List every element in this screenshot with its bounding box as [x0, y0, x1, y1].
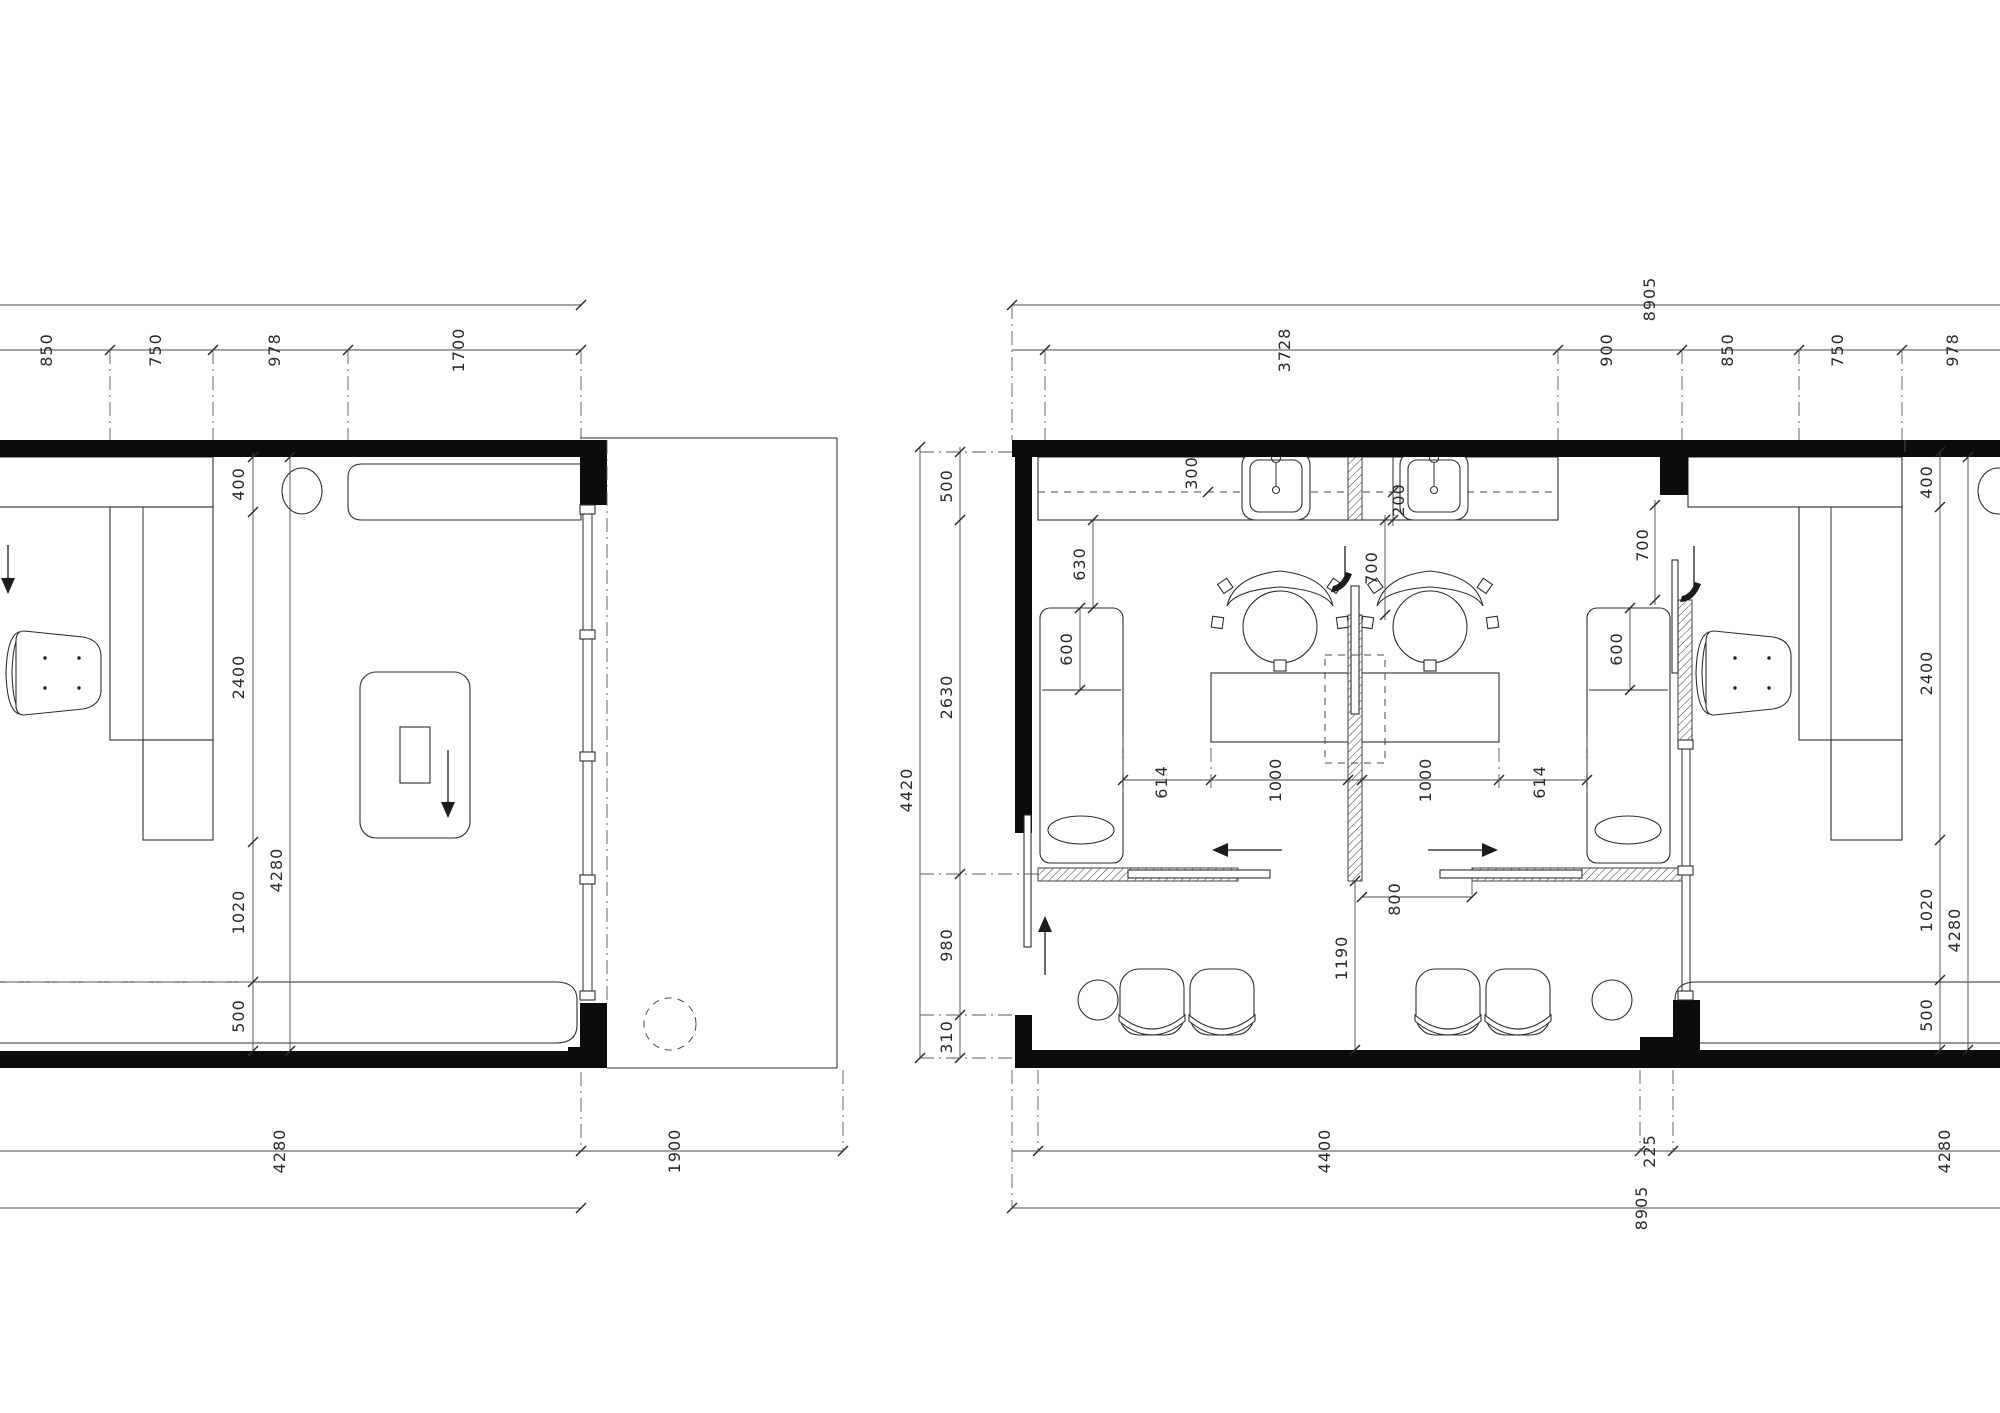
dimension-label: 1190	[1332, 936, 1351, 981]
dimension-label: 500	[937, 469, 956, 503]
sliding-door-right	[1440, 870, 1582, 878]
dimension-label: 4420	[897, 768, 916, 813]
dimension-label: 1900	[665, 1129, 684, 1174]
adjacent-space-outline	[580, 438, 837, 1068]
plan-left	[0, 438, 837, 1068]
dimension-label: 700	[1633, 528, 1652, 562]
dimension-label: 978	[265, 333, 284, 367]
screen-panel	[1351, 586, 1359, 714]
side-table-right	[1592, 980, 1632, 1020]
stool-right	[1978, 468, 2000, 514]
dimension-label: 4280	[267, 848, 286, 893]
dimension-label: 300	[1182, 456, 1201, 490]
wall-counter	[348, 464, 581, 520]
glazed-window-wall-right	[1678, 740, 1693, 1000]
dimension-label: 900	[1597, 333, 1616, 367]
dashed-column	[644, 998, 696, 1050]
sliding-door-left-arrow	[1212, 843, 1282, 857]
wall-bottom	[0, 1051, 580, 1068]
dimension-label: 400	[229, 467, 248, 501]
dimension-label: 310	[937, 1020, 956, 1054]
counter-pier	[1348, 457, 1362, 520]
sink-left	[1242, 452, 1310, 520]
dimension-label: 4280	[1935, 1129, 1954, 1174]
wall-top-left-section	[1012, 440, 1660, 457]
dimension-label: 225	[1640, 1134, 1659, 1168]
sliding-door-right-arrow	[1428, 843, 1498, 857]
dimension-label: 2400	[1917, 651, 1936, 696]
dimension-label: 4400	[1315, 1129, 1334, 1174]
sliding-door-left	[1128, 870, 1270, 878]
dimension-label: 630	[1070, 547, 1089, 581]
floorplan-canvas: 8507509781700400240010205004280428019008…	[0, 0, 2000, 1413]
dimension-label: 1020	[1917, 888, 1936, 933]
dimension-label: 750	[1828, 333, 1847, 367]
dimension-label: 850	[1718, 333, 1737, 367]
wall-stub-door	[1660, 440, 1688, 495]
bench	[0, 982, 577, 1043]
entry-door-leaf	[1024, 815, 1031, 947]
door-pocket	[1678, 600, 1692, 740]
wall-corner-bottom-right	[580, 1003, 607, 1068]
wall-bottom-right-section	[1700, 1050, 2000, 1068]
dimension-label: 614	[1530, 765, 1549, 799]
dimension-label: 700	[1362, 551, 1381, 585]
wall-top-right-section	[1688, 440, 2000, 457]
dimension-label: 614	[1152, 765, 1171, 799]
dimension-label: 2630	[937, 675, 956, 720]
wall-corner-top-right	[580, 440, 607, 505]
dimension-label: 1700	[449, 328, 468, 373]
dimension-label: 850	[37, 333, 56, 367]
room-door-arrow	[1680, 546, 1701, 602]
dimension-label: 400	[1917, 465, 1936, 499]
entry-arrow-left	[1, 545, 15, 594]
dimension-label: 500	[229, 999, 248, 1033]
room-door-leaf	[1672, 560, 1678, 673]
dimension-label: 200	[1389, 483, 1408, 517]
dimension-label: 600	[1607, 632, 1626, 666]
task-chair	[6, 631, 101, 715]
wall-corner-right-room	[1673, 1000, 1700, 1050]
dimension-label: 4280	[1945, 908, 1964, 953]
waiting-chair-2	[1189, 969, 1255, 1035]
sink-right	[1400, 452, 1468, 520]
stool	[282, 468, 322, 514]
glazed-window-wall	[580, 505, 595, 1000]
wardrobe-right	[1587, 608, 1670, 863]
wardrobe-left	[1040, 608, 1123, 863]
plan-right	[1012, 440, 2000, 1068]
rug-with-table	[360, 672, 470, 838]
dimension-label: 1000	[1416, 758, 1435, 803]
dimension-label: 2400	[229, 655, 248, 700]
dimension-label: 600	[1057, 632, 1076, 666]
dimension-label: 8905	[1632, 1186, 1651, 1231]
dimension-label: 4280	[270, 1129, 289, 1174]
meeting-chair-right	[1361, 571, 1499, 671]
dimension-label: 500	[1917, 998, 1936, 1032]
task-chair-right	[1696, 631, 1791, 715]
waiting-chair-1	[1119, 969, 1185, 1035]
dimension-label: 750	[146, 333, 165, 367]
wall-top	[0, 440, 580, 457]
dimension-lines	[0, 300, 2000, 1213]
dimension-label: 800	[1385, 882, 1404, 916]
wall-bottom-left-section	[1015, 1050, 1640, 1068]
dimension-label: 980	[937, 928, 956, 962]
wall-left	[1015, 440, 1032, 833]
drawing-sheet: 8507509781700400240010205004280428019008…	[0, 0, 2000, 1413]
waiting-chair-3	[1415, 969, 1481, 1035]
waiting-chair-4	[1485, 969, 1551, 1035]
dimension-label: 978	[1943, 333, 1962, 367]
dimension-label: 3728	[1275, 328, 1294, 373]
dimension-labels: 8507509781700400240010205004280428019008…	[37, 277, 1964, 1231]
side-table-left	[1078, 980, 1118, 1020]
entry-arrow	[1038, 916, 1052, 975]
dimension-label: 8905	[1640, 277, 1659, 322]
dimension-label: 1020	[229, 890, 248, 935]
dimension-label: 1000	[1266, 758, 1285, 803]
bench-right	[1675, 982, 2000, 1043]
meeting-chair-left	[1211, 571, 1349, 671]
